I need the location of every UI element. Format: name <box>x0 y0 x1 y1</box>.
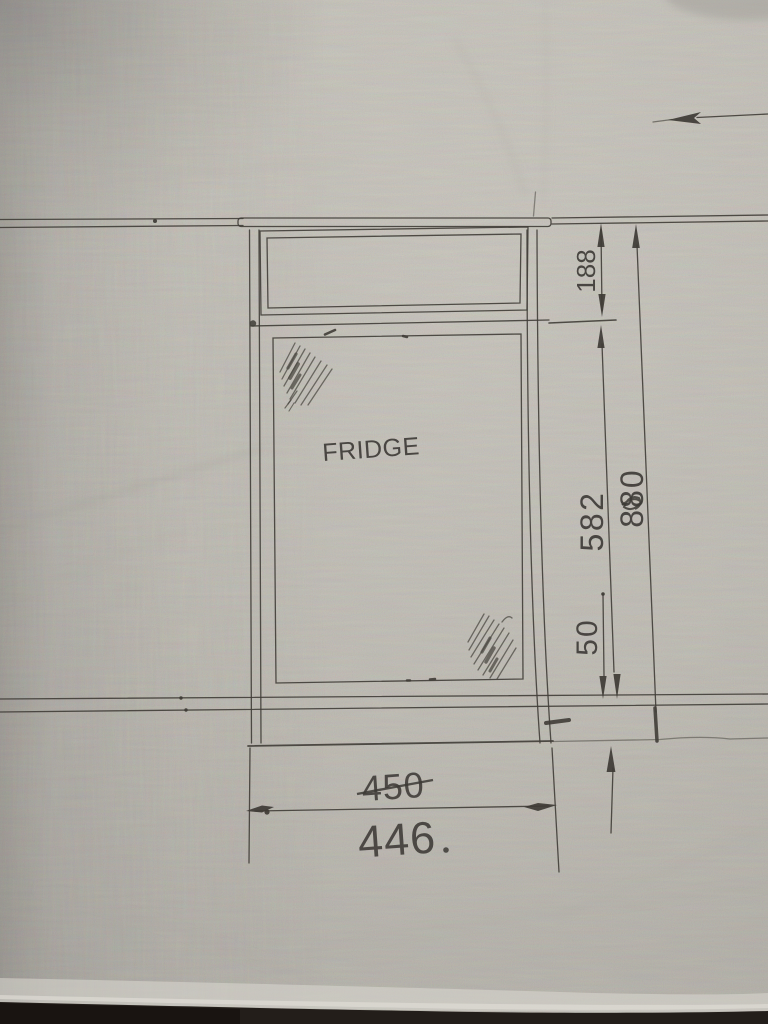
svg-text:582: 582 <box>574 491 610 552</box>
svg-text:188: 188 <box>571 249 601 292</box>
svg-text:446: 446 <box>356 811 437 867</box>
svg-text:50: 50 <box>571 618 604 655</box>
